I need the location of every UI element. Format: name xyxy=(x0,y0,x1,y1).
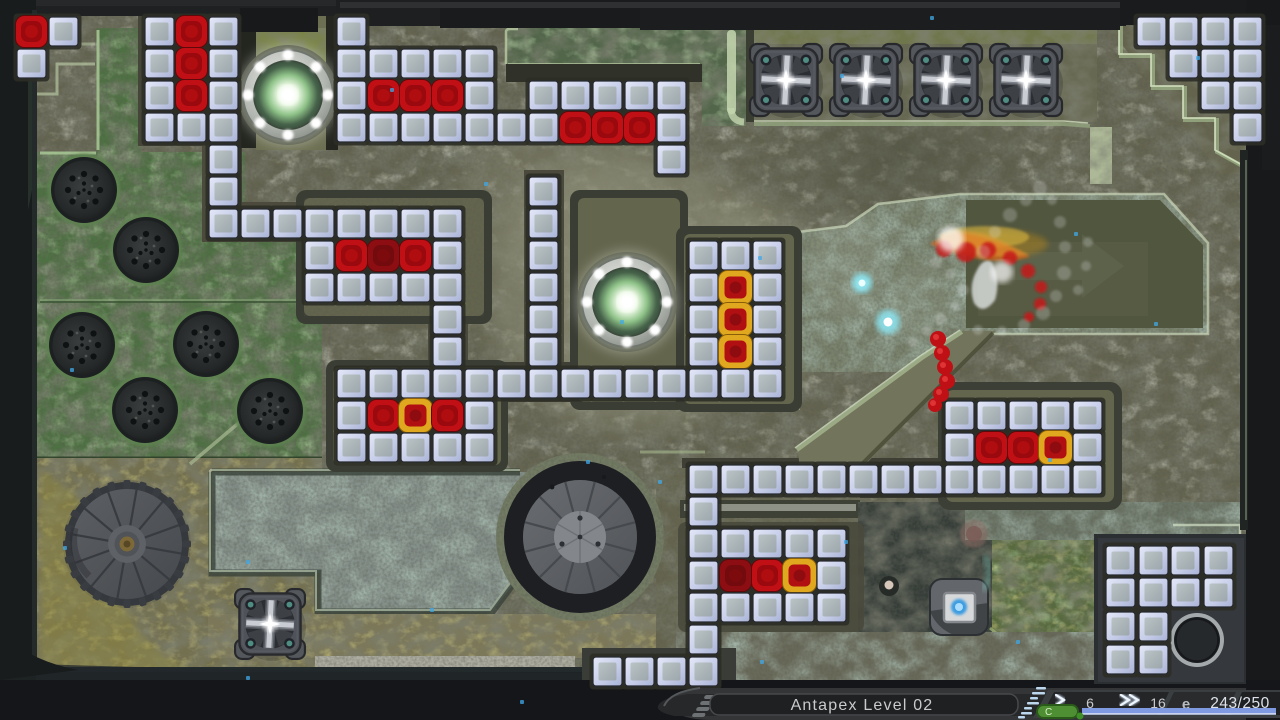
svg-text:C: C xyxy=(1045,707,1052,718)
svg-text:Antapex Level 02: Antapex Level 02 xyxy=(791,697,934,714)
